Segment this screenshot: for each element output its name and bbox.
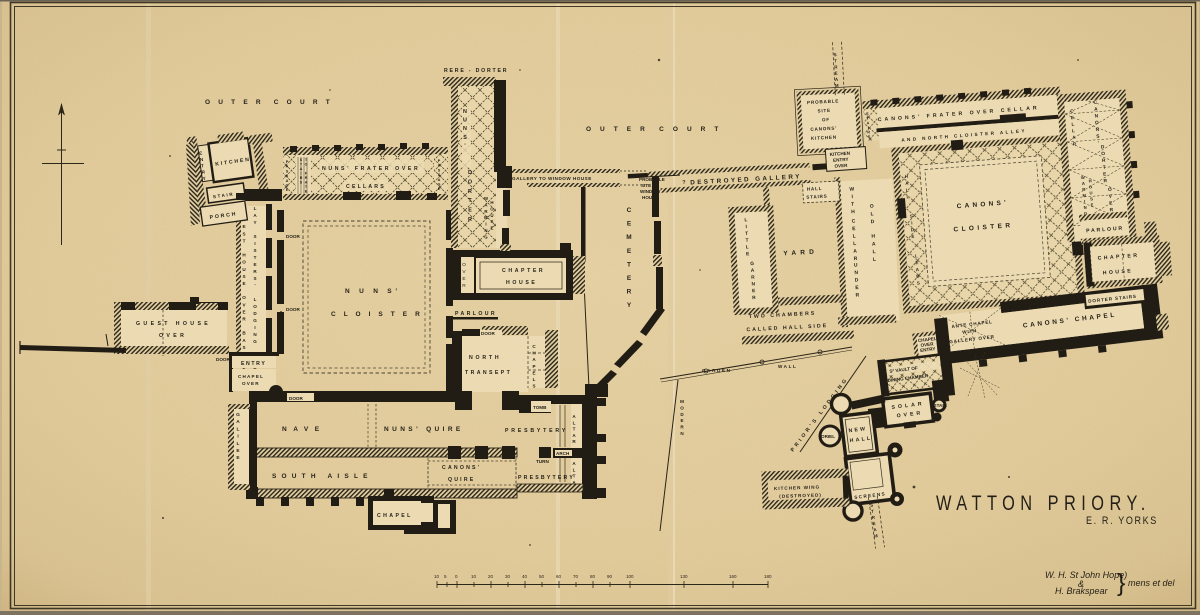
- svg-text:HOUSE: HOUSE: [489, 200, 494, 232]
- svg-text:NAVE: NAVE: [282, 426, 326, 433]
- svg-text:WARMING: WARMING: [483, 196, 489, 241]
- svg-text:TOMB: TOMB: [533, 405, 547, 410]
- svg-text:TURN: TURN: [536, 459, 549, 464]
- svg-text:O U T E R C O U R T: O U T E R C O U R T: [205, 99, 333, 106]
- svg-text:HOUSE: HOUSE: [642, 195, 658, 200]
- svg-text:OVER: OVER: [242, 381, 260, 386]
- svg-text:GARDEN: GARDEN: [702, 368, 732, 373]
- svg-text:STAIRS: STAIRS: [299, 158, 303, 185]
- svg-text:STAIR: STAIR: [934, 403, 948, 408]
- svg-text:60: 60: [556, 574, 562, 579]
- svg-text:NUNS’ FRATER OVER: NUNS’ FRATER OVER: [322, 166, 420, 172]
- svg-text:DOOR: DOOR: [286, 307, 300, 312]
- svg-text:CANONS’: CANONS’: [442, 465, 481, 471]
- svg-text:70: 70: [573, 574, 579, 579]
- svg-text:180: 180: [764, 574, 772, 579]
- svg-text:CHAPEL: CHAPEL: [377, 513, 413, 519]
- svg-text:10: 10: [434, 574, 440, 579]
- svg-text:80: 80: [590, 574, 596, 579]
- svg-text:C L O I S T E R: C L O I S T E R: [331, 311, 423, 318]
- svg-text:DOOR: DOOR: [216, 357, 230, 362]
- svg-text:SITE OF: SITE OF: [641, 183, 659, 188]
- svg-text:CHAPEL: CHAPEL: [238, 374, 264, 379]
- svg-text:20: 20: [488, 574, 494, 579]
- svg-text:N U N S’: N U N S’: [345, 288, 401, 295]
- svg-text:OLD: OLD: [869, 203, 876, 227]
- svg-text:GALILEE: GALILEE: [235, 412, 240, 463]
- svg-text:ARCH: ARCH: [556, 451, 570, 456]
- svg-text:TRANSEPT: TRANSEPT: [465, 370, 512, 376]
- svg-text:mens et del: mens et del: [1128, 578, 1176, 588]
- svg-text:W. H. St John Hope): W. H. St John Hope): [1045, 570, 1127, 580]
- svg-text:H. Brakspear: H. Brakspear: [1055, 586, 1109, 596]
- svg-text:TO FRATER: TO FRATER: [304, 158, 308, 199]
- svg-text:ENTRY: ENTRY: [241, 361, 266, 367]
- svg-text:DOOR: DOOR: [481, 331, 495, 336]
- svg-text:OF: OF: [822, 117, 830, 122]
- svg-text:NUNS’: NUNS’: [462, 109, 468, 152]
- svg-text:LAY SISTERS' LODGING AND: LAY SISTERS' LODGING AND: [252, 206, 257, 374]
- svg-text:SOUTH AISLE: SOUTH AISLE: [272, 473, 373, 480]
- svg-text:QUIRE: QUIRE: [448, 477, 475, 483]
- svg-text:OVER: OVER: [834, 163, 848, 169]
- svg-text:NUNS’ QUIRE: NUNS’ QUIRE: [384, 426, 464, 433]
- svg-text:CEMETERY: CEMETERY: [626, 207, 633, 316]
- svg-text:130: 130: [680, 574, 688, 579]
- svg-text:CELLARS: CELLARS: [346, 184, 386, 190]
- svg-text:PRESBYTERY: PRESBYTERY: [518, 475, 575, 481]
- svg-text:PASSAGE: PASSAGE: [437, 159, 441, 192]
- svg-text:SITE: SITE: [817, 108, 831, 114]
- svg-text:ORIEL: ORIEL: [821, 434, 835, 439]
- svg-text:WATTON PRIORY.: WATTON PRIORY.: [936, 491, 1151, 514]
- svg-text:GALLERY TO WINDOW HOUSE: GALLERY TO WINDOW HOUSE: [512, 176, 592, 181]
- svg-text:}: }: [1117, 569, 1125, 597]
- svg-text:WALL: WALL: [778, 364, 797, 369]
- svg-text:DOOR: DOOR: [289, 396, 303, 401]
- svg-text:PARLOUR: PARLOUR: [455, 311, 497, 317]
- svg-text:MODERN: MODERN: [679, 399, 684, 437]
- svg-text:GUEST HOUSE: GUEST HOUSE: [136, 321, 211, 327]
- svg-text:OVER: OVER: [461, 262, 466, 291]
- svg-text:40: 40: [522, 574, 528, 579]
- svg-text:100: 100: [626, 574, 634, 579]
- svg-text:50: 50: [539, 574, 545, 579]
- svg-text:HOUSE: HOUSE: [506, 280, 537, 286]
- svg-text:CHAPTER: CHAPTER: [502, 268, 545, 274]
- svg-text:30: 30: [505, 574, 511, 579]
- svg-text:E. R. YORKS: E. R. YORKS: [1086, 515, 1158, 527]
- svg-text:PASSAGE: PASSAGE: [285, 160, 289, 193]
- svg-text:OVER: OVER: [159, 333, 187, 339]
- svg-text:PRESBYTERY: PRESBYTERY: [505, 428, 568, 434]
- svg-text:RERE - DORTER: RERE - DORTER: [444, 68, 508, 74]
- svg-text:CHAPELS: CHAPELS: [531, 344, 536, 390]
- svg-text:160: 160: [729, 574, 737, 579]
- svg-text:90: 90: [607, 574, 613, 579]
- svg-text:DORTER: DORTER: [467, 170, 473, 226]
- svg-text:DOOR: DOOR: [286, 234, 300, 239]
- svg-text:ALTAR: ALTAR: [571, 414, 576, 446]
- svg-text:NORTH: NORTH: [469, 355, 501, 361]
- svg-text:HALL: HALL: [807, 186, 823, 192]
- svg-text:10: 10: [471, 574, 477, 579]
- svg-text:PROBABLE: PROBABLE: [639, 177, 665, 182]
- svg-text:WINDOW: WINDOW: [640, 189, 661, 194]
- svg-text:O U T E R C O U R T: O U T E R C O U R T: [586, 126, 722, 133]
